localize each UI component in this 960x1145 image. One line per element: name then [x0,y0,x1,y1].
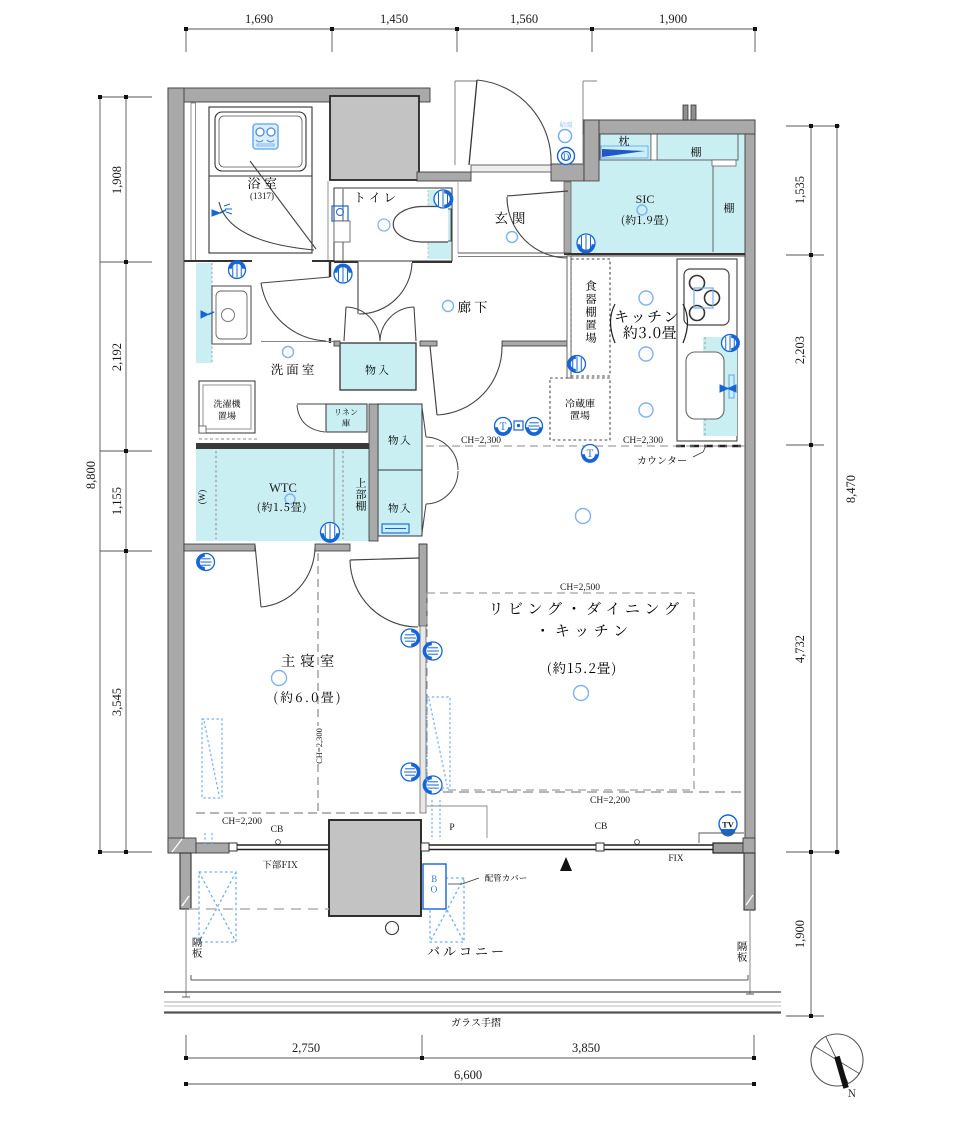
svg-text:1,450: 1,450 [380,12,408,26]
svg-text:1,690: 1,690 [245,12,273,26]
svg-text:CH=2,300: CH=2,300 [623,436,663,446]
svg-text:TV: TV [722,820,735,830]
svg-text:2,192: 2,192 [110,343,124,371]
svg-text:2,750: 2,750 [292,1041,320,1055]
svg-text:1,908: 1,908 [110,166,124,194]
svg-text:(1317): (1317) [250,191,274,201]
svg-text:3,850: 3,850 [572,1041,600,1055]
svg-text:CH=2,200: CH=2,200 [222,817,262,827]
svg-text:2,203: 2,203 [793,336,807,364]
svg-text:CH=2,300: CH=2,300 [314,728,324,764]
svg-text:CB: CB [595,822,608,832]
svg-text:1,535: 1,535 [793,176,807,204]
svg-text:(W): (W) [197,490,207,505]
svg-text:CB: CB [271,825,284,835]
svg-text:4,732: 4,732 [793,635,807,663]
svg-text:3,545: 3,545 [110,688,124,716]
svg-text:CH=2,300: CH=2,300 [461,436,501,446]
svg-text:1,900: 1,900 [793,920,807,948]
svg-text:1,155: 1,155 [110,487,124,515]
svg-text:8,470: 8,470 [844,475,858,503]
svg-text:CH=2,500: CH=2,500 [560,583,600,593]
svg-text:P: P [449,823,454,833]
svg-text:CH=2,200: CH=2,200 [590,796,630,806]
svg-text:WTC: WTC [269,481,297,495]
svg-text:FIX: FIX [668,854,683,864]
svg-text:SIC: SIC [636,192,655,206]
svg-text:1,900: 1,900 [659,12,687,26]
svg-text:1,560: 1,560 [510,12,538,26]
svg-text:6,600: 6,600 [454,1068,482,1082]
svg-text:8,800: 8,800 [84,461,98,489]
